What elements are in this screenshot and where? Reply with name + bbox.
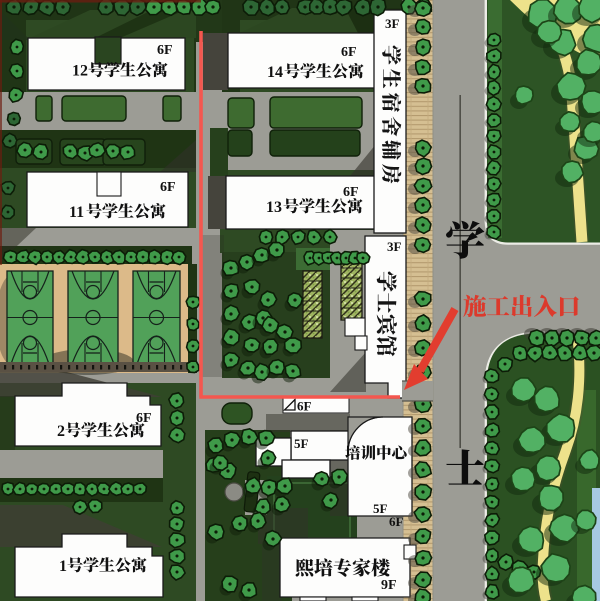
svg-text:3F: 3F [385,16,400,31]
svg-text:2: 2 [57,423,65,440]
svg-text:6F: 6F [297,399,312,414]
svg-text:3F: 3F [387,239,402,254]
svg-text:5F: 5F [373,501,388,516]
svg-text:1: 1 [59,558,67,575]
svg-text:12: 12 [72,63,88,80]
svg-text:5F: 5F [294,436,309,451]
svg-text:6F: 6F [343,185,359,200]
svg-text:6F: 6F [136,411,152,426]
svg-text:11: 11 [69,204,84,221]
svg-text:13: 13 [266,199,282,216]
svg-text:9F: 9F [381,578,397,593]
svg-text:6F: 6F [341,45,357,60]
svg-text:6F: 6F [157,43,173,58]
svg-text:6F: 6F [160,180,176,195]
svg-text:6F: 6F [389,514,404,529]
svg-text:14: 14 [267,64,283,81]
